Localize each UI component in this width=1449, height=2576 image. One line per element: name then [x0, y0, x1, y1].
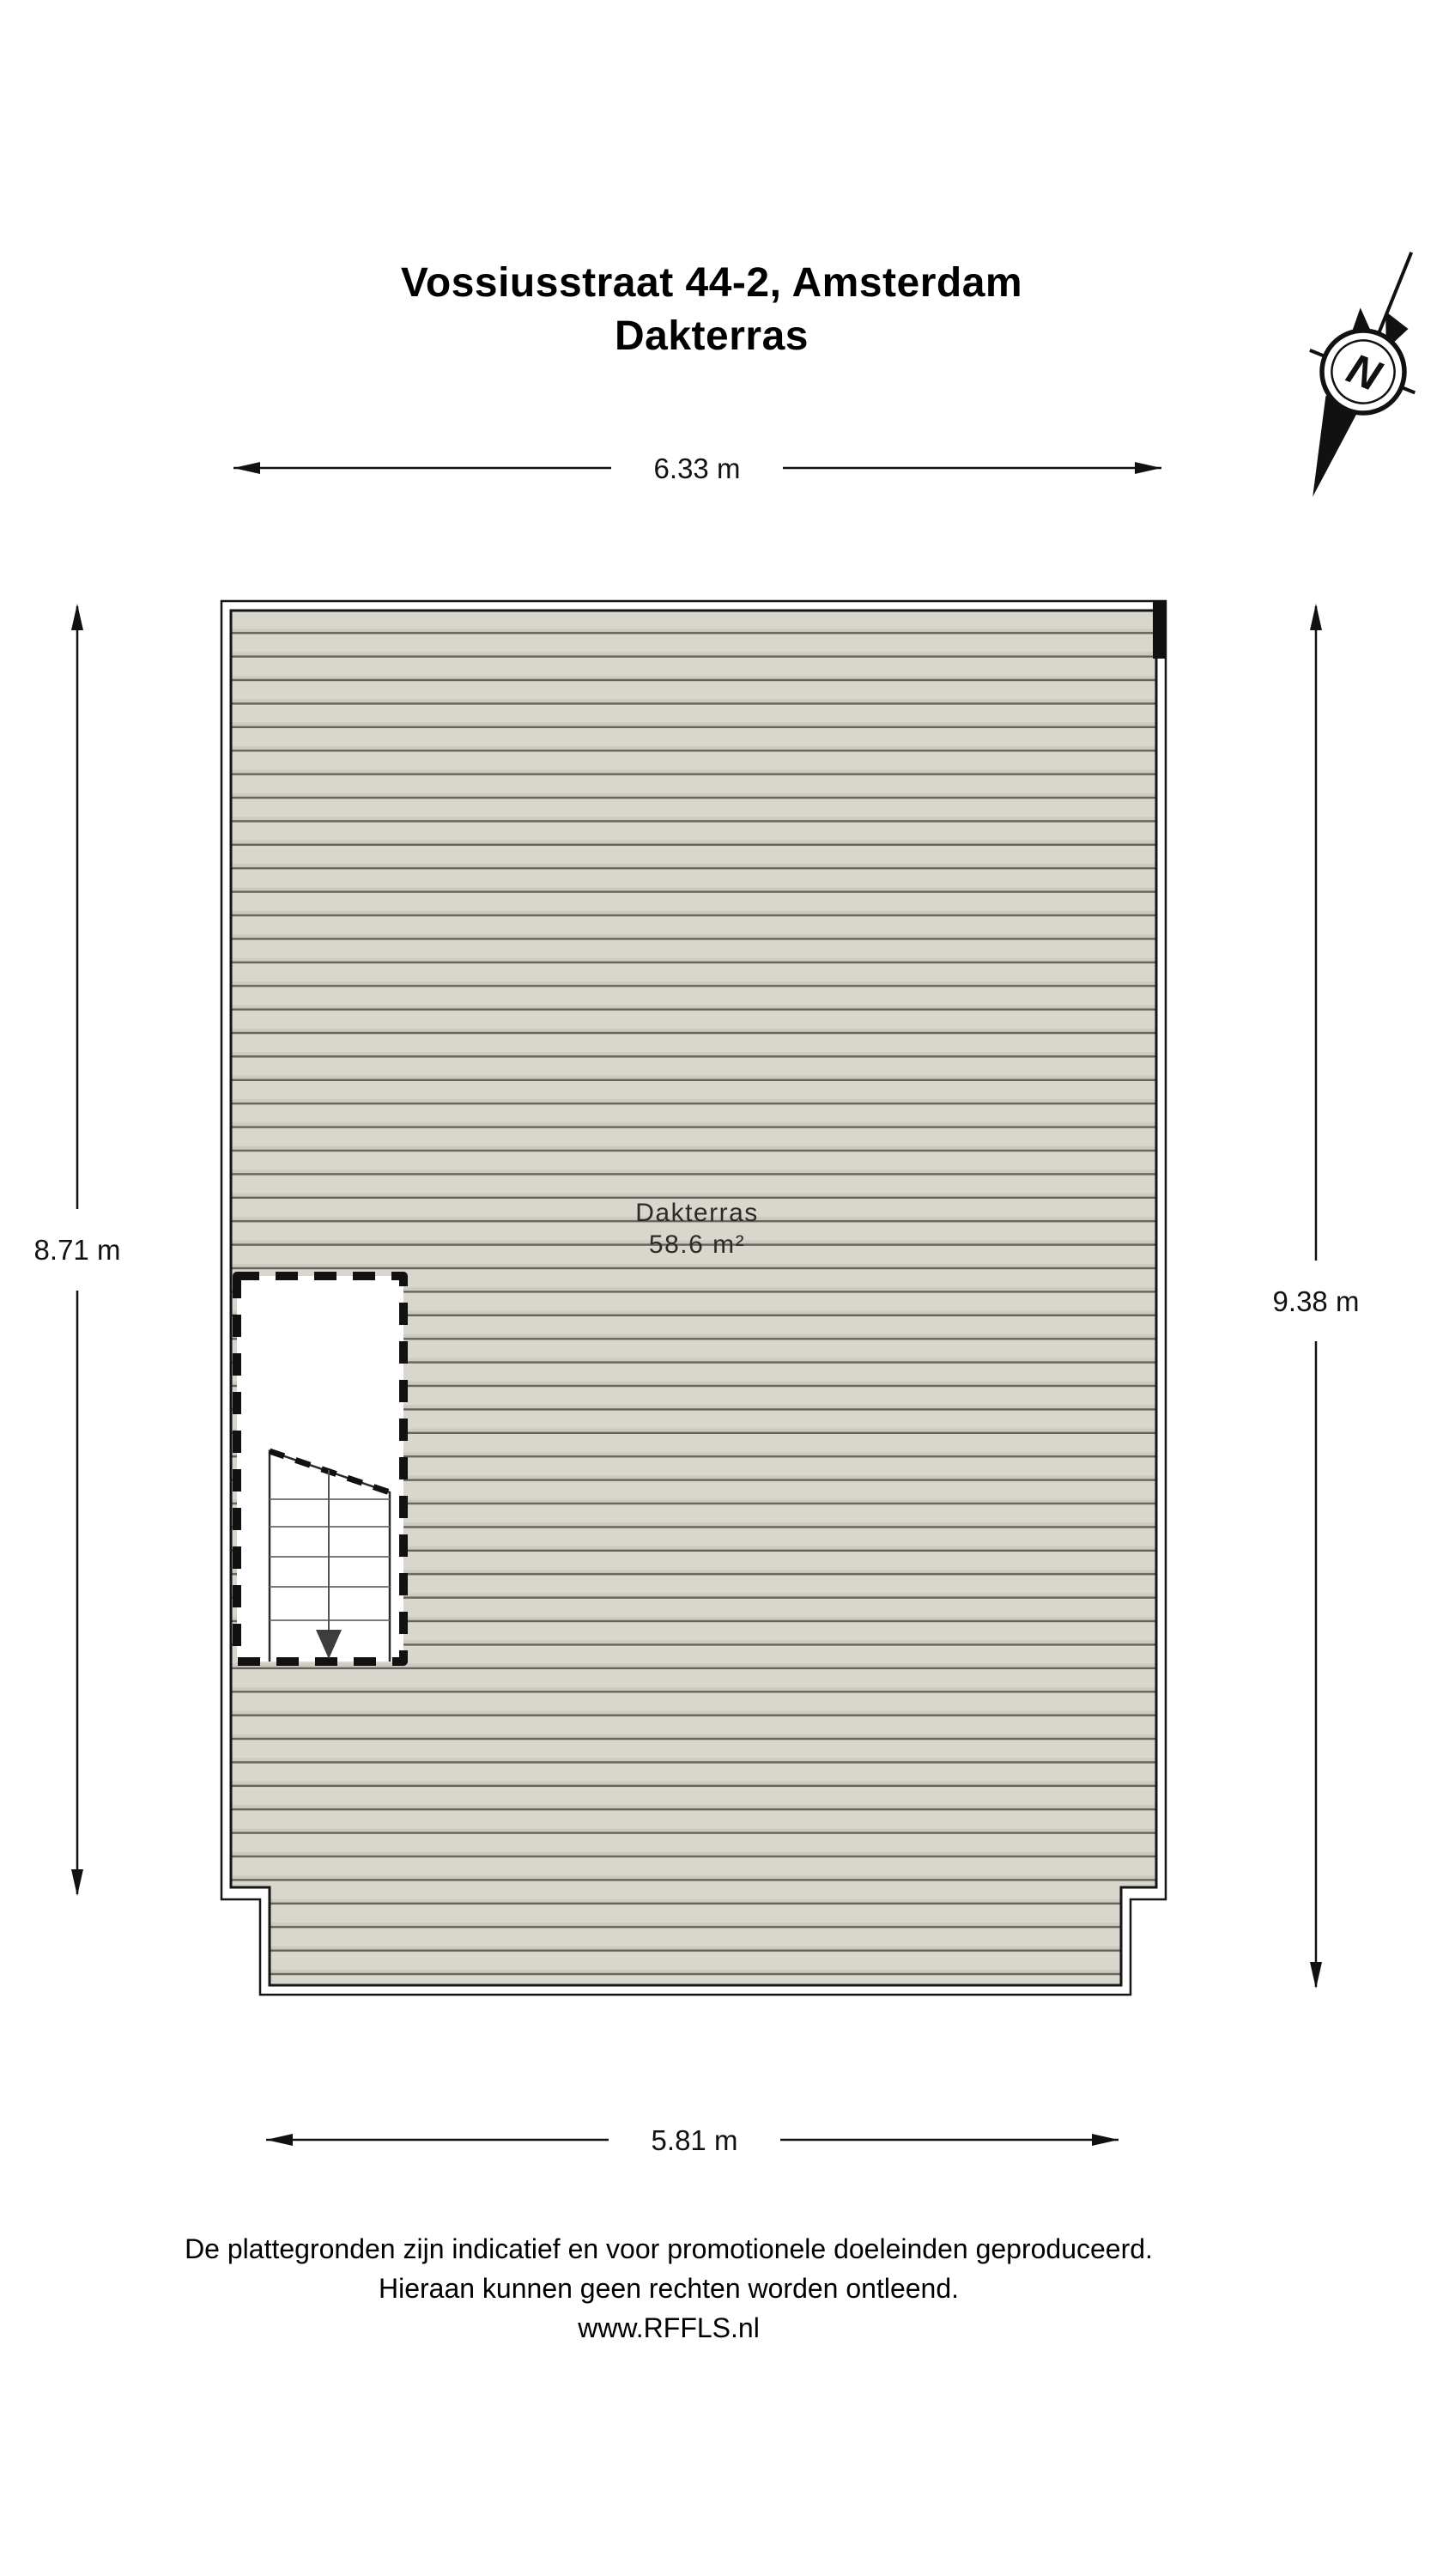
disclaimer-line-1: De plattegronden zijn indicatief en voor… — [72, 2229, 1265, 2269]
room-area: 58.6 m² — [525, 1229, 869, 1261]
dimension-label-bottom: 5.81 m — [609, 2123, 780, 2158]
dimension-label-top: 6.33 m — [611, 452, 783, 486]
disclaimer: De plattegronden zijn indicatief en voor… — [72, 2229, 1265, 2348]
floorplan-page: N Vossiusstraat 44-2, Amsterdam Dakterra… — [0, 0, 1449, 2576]
page-title: Vossiusstraat 44-2, Amsterdam Dakterras — [81, 257, 1343, 363]
room-label: Dakterras 58.6 m² — [525, 1197, 869, 1261]
room-name: Dakterras — [525, 1197, 869, 1229]
title-address: Vossiusstraat 44-2, Amsterdam — [81, 257, 1343, 310]
wall-segment-top-right — [1153, 600, 1167, 659]
disclaimer-line-2: Hieraan kunnen geen rechten worden ontle… — [72, 2269, 1265, 2308]
disclaimer-website: www.RFFLS.nl — [72, 2308, 1265, 2348]
floorplan-drawing: N — [0, 0, 1449, 2576]
dimension-label-right: 9.38 m — [1256, 1285, 1376, 1319]
dimension-label-left: 8.71 m — [17, 1233, 137, 1267]
title-floor: Dakterras — [81, 310, 1343, 363]
